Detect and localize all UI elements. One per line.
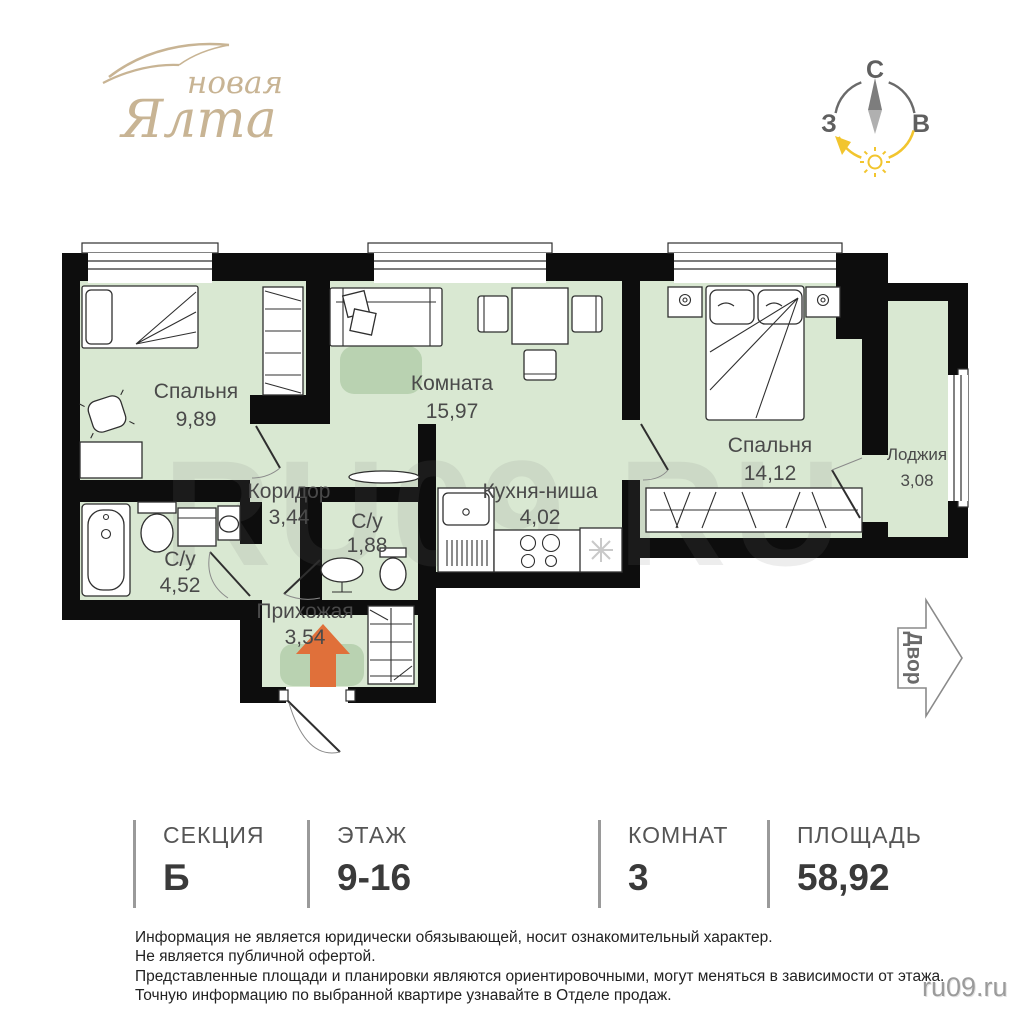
info-cell-floor: ЭТАЖ 9-16 [307,820,598,908]
yard-arrow: Двор [898,600,962,716]
disclaimer-line-2: Не является публичной офертой. [135,947,944,966]
site-watermark: ru09.ru [922,972,1008,1003]
dining-table [512,288,568,344]
washing-machine [178,508,216,546]
console-table [349,471,419,483]
room-label-living: Комната [411,372,494,395]
room-label-bedroom-1: Спальня [154,380,238,403]
bathroom-sink [220,516,239,532]
sun-icon [860,147,890,177]
toilet [141,514,173,552]
info-value-area: 58,92 [797,857,967,899]
window-living [368,243,552,283]
room-area-hallway: 3,54 [285,626,326,649]
fridge-icon [580,528,622,572]
info-cell-area: ПЛОЩАДЬ 58,92 [767,820,967,908]
room-label-hallway: Прихожая [256,600,353,623]
room-label-bathroom: С/у [164,548,196,571]
info-value-floor: 9-16 [337,857,598,899]
logo: новая Ялта [103,44,283,150]
info-cell-section: СЕКЦИЯ Б [133,820,307,908]
sun-path-arc [889,130,914,157]
wardrobe-hallway [368,606,414,684]
sun-arc-arrowhead [835,136,851,155]
info-label-section: СЕКЦИЯ [163,822,307,849]
window-bedroom-2 [668,243,842,283]
info-value-rooms: 3 [628,857,767,899]
info-bar: СЕКЦИЯ Б ЭТАЖ 9-16 КОМНАТ 3 ПЛОЩАДЬ 58,9… [0,820,1024,916]
room-label-bedroom-2: Спальня [728,434,812,457]
wardrobe-bedroom-2 [646,488,862,532]
info-label-rooms: КОМНАТ [628,822,767,849]
floorplan-canvas: новая Ялта С З В [0,0,1024,790]
disclaimer-line-3: Представленные площади и планировки явля… [135,967,944,986]
room-area-bathroom: 4,52 [160,574,201,597]
compass-east-label: В [912,110,930,138]
room-label-loggia: Лоджия [887,445,947,464]
floor-loggia [888,301,948,537]
info-cell-rooms: КОМНАТ 3 [598,820,767,908]
compass-west-label: З [821,110,837,138]
disclaimer: Информация не является юридически обязыв… [135,928,944,1006]
door-entrance [279,687,355,753]
compass: С З В [821,56,930,177]
room-label-corridor: Коридор [248,480,331,503]
room-label-wc-small: С/у [351,510,383,533]
room-area-bedroom-2: 14,12 [744,462,797,485]
room-area-wc-small: 1,88 [347,534,388,557]
rug [340,346,422,394]
yard-arrow-label: Двор [902,631,925,684]
window-loggia [948,369,968,507]
room-area-corridor: 3,44 [269,506,310,529]
room-area-kitchen: 4,02 [520,506,561,529]
room-area-bedroom-1: 9,89 [176,408,217,431]
info-label-floor: ЭТАЖ [337,822,598,849]
window-bedroom-1 [82,243,218,283]
info-label-area: ПЛОЩАДЬ [797,822,967,849]
room-area-loggia: 3,08 [900,471,933,490]
room-label-kitchen: Кухня-ниша [482,480,597,503]
logo-word-2: Ялта [119,90,276,150]
info-value-section: Б [163,857,307,899]
disclaimer-line-4: Точную информацию по выбранной квартире … [135,986,944,1005]
room-area-living: 15,97 [426,400,479,423]
disclaimer-line-1: Информация не является юридически обязыв… [135,928,944,947]
